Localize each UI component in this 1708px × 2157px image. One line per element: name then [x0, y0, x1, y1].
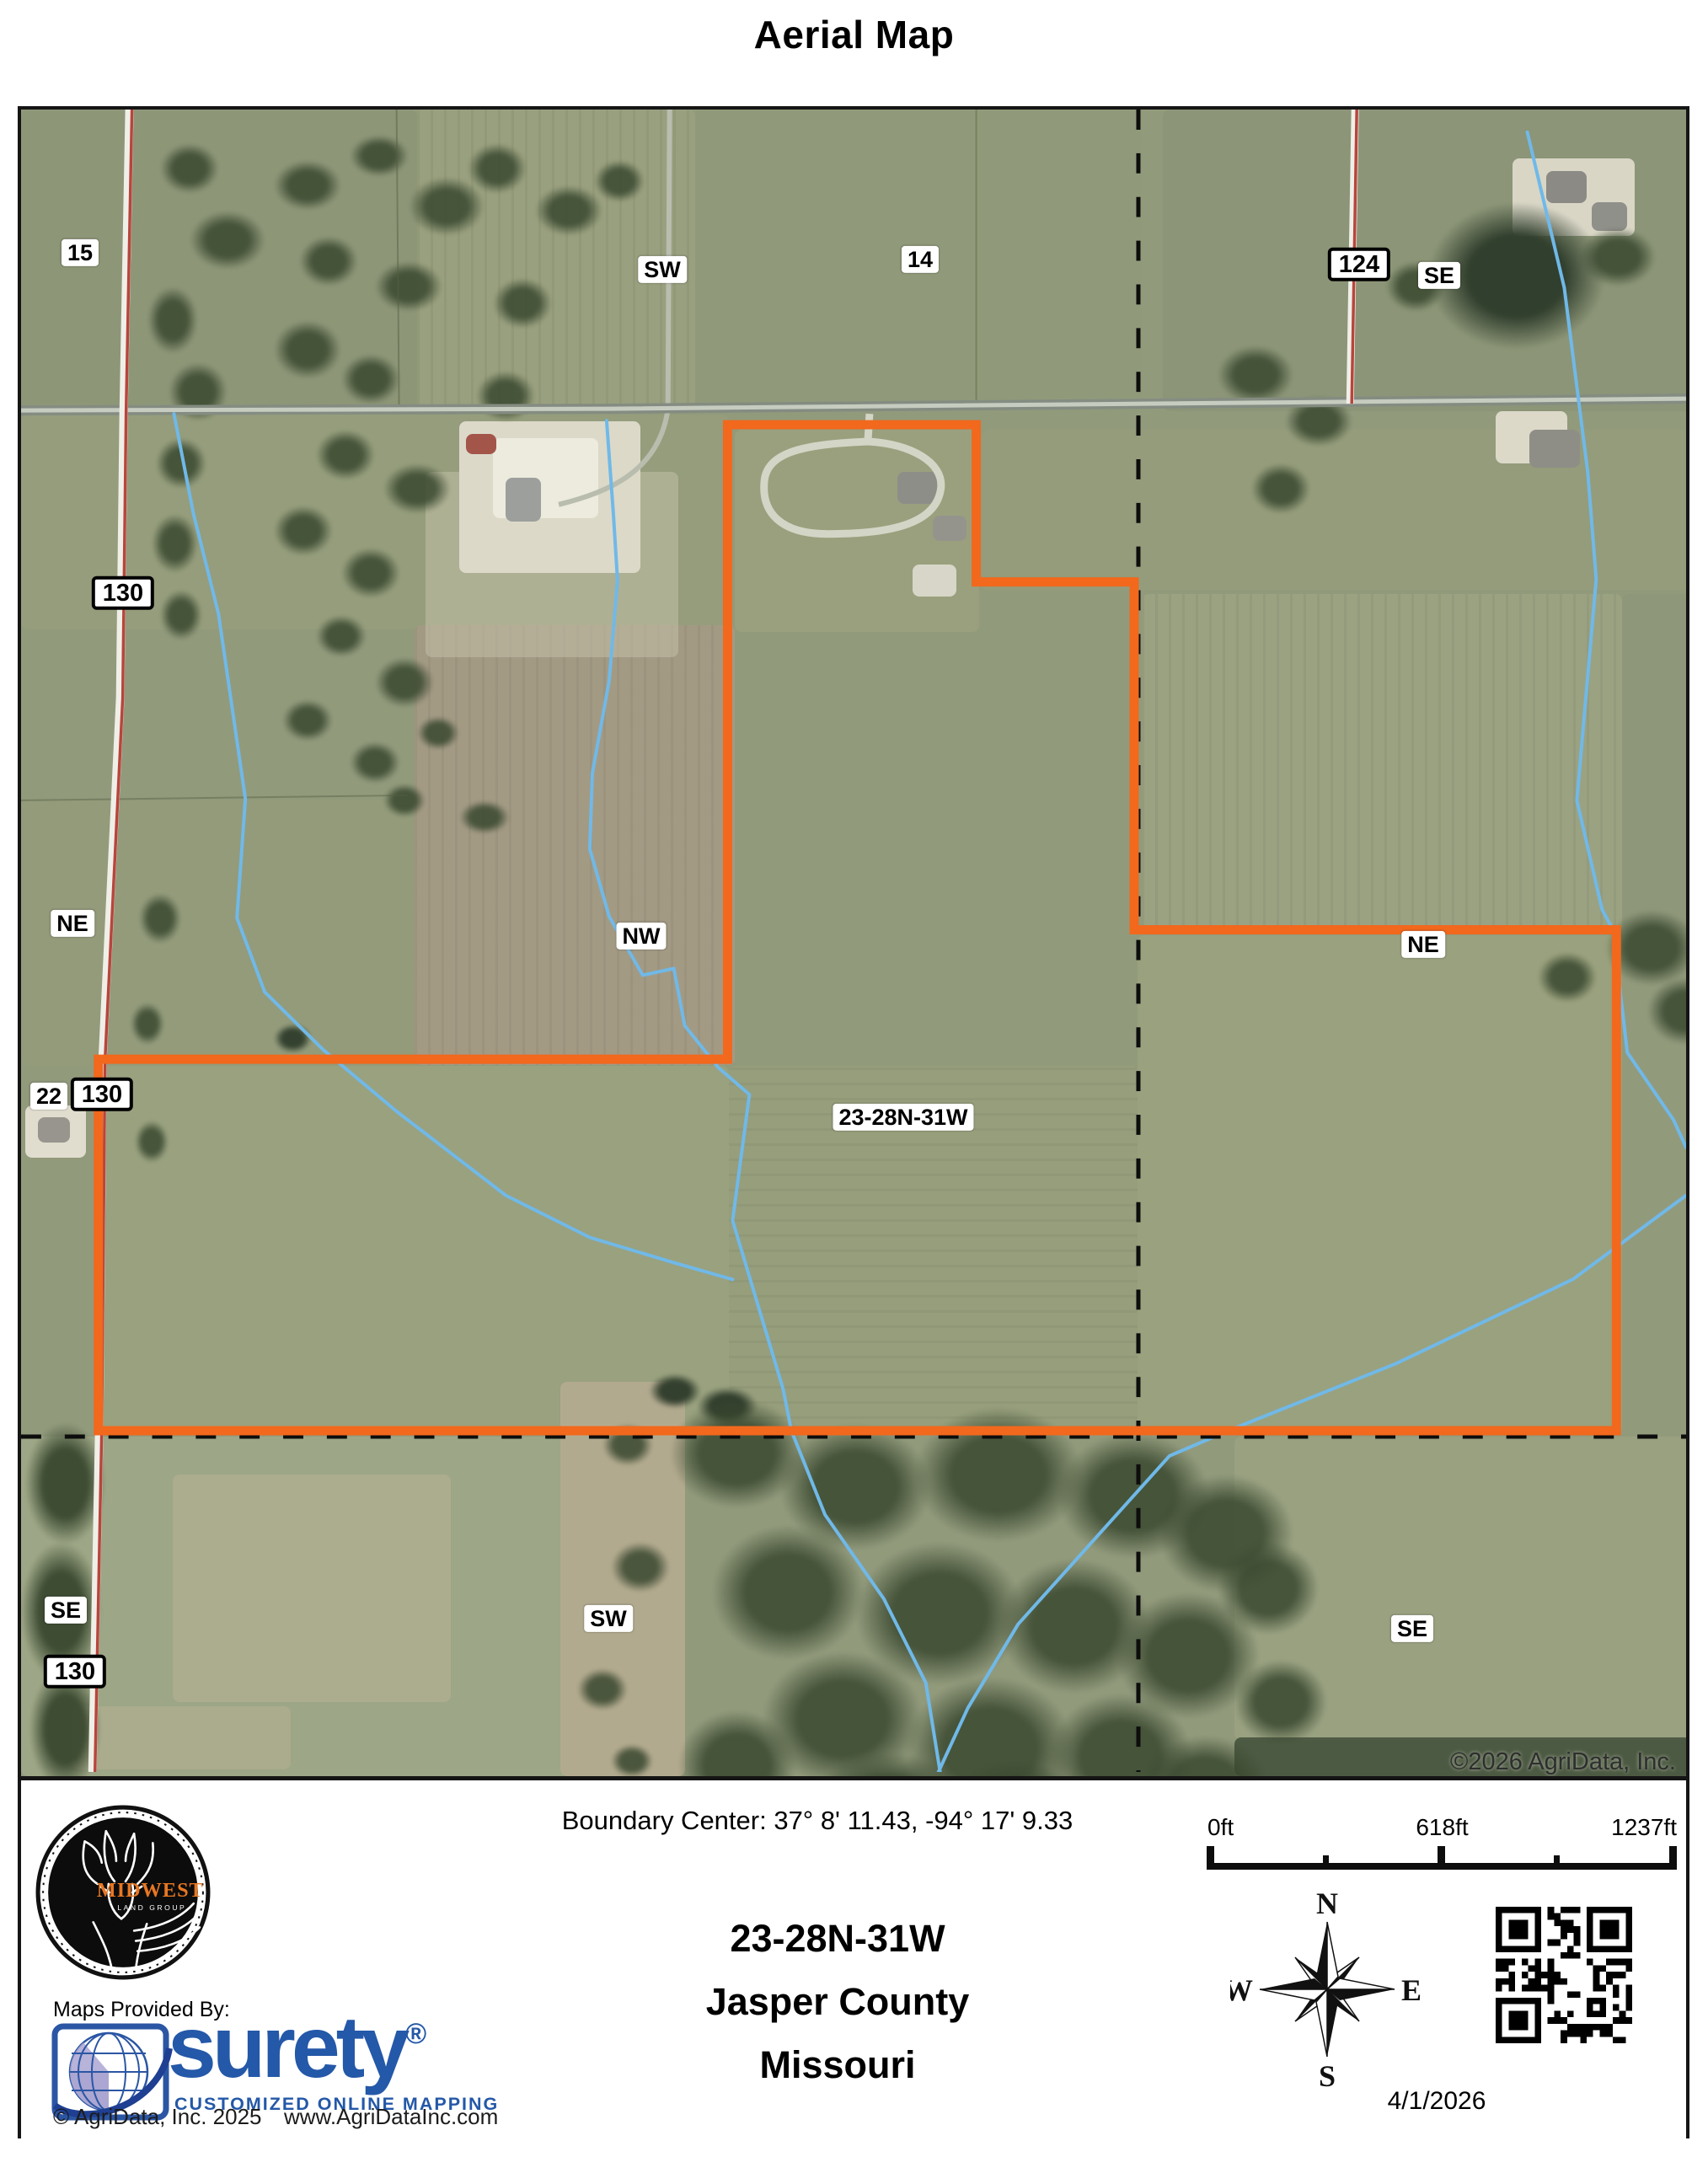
compass-w: W [1230, 1973, 1253, 2007]
farm-driveway [764, 414, 941, 534]
creek-lines [174, 132, 1686, 1772]
section-label: 22 [30, 1083, 67, 1110]
section-label: SW [584, 1605, 633, 1632]
scale-labels: 0ft 618ft 1237ft [1207, 1814, 1677, 1843]
route-shield-label: 130 [92, 576, 154, 610]
section-label: NE [1401, 931, 1445, 958]
boundary-center-text: Boundary Center: 37° 8' 11.43, -94° 17' … [375, 1806, 1260, 1836]
svg-text:LAND GROUP: LAND GROUP [117, 1903, 186, 1912]
map-copyright: ©2026 AgriData, Inc. [1450, 1748, 1676, 1776]
section-label: SE [1391, 1615, 1433, 1642]
section-label: 15 [62, 239, 99, 266]
compass-e: E [1401, 1973, 1422, 2007]
page-title: Aerial Map [0, 12, 1708, 57]
compass-n: N [1316, 1887, 1338, 1920]
midwest-logo-text: MIDWEST [97, 1879, 204, 1902]
route-shield-label: 130 [71, 1078, 133, 1111]
location-state: Missouri [564, 2033, 1111, 2096]
gravel-trail [559, 110, 670, 505]
location-trs: 23-28N-31W [564, 1907, 1111, 1970]
aerial-map-page: Aerial Map [0, 0, 1708, 2157]
property-boundary [99, 425, 1617, 1431]
section-label: SW [638, 256, 687, 283]
route-shield-label: 130 [44, 1655, 106, 1689]
compass-s: S [1319, 2059, 1336, 2093]
map-frame: 15SW14124SE130NE22130NWNE23-28N-31WSE130… [18, 106, 1689, 2138]
compass-star [1260, 1922, 1395, 2057]
surety-logo-text: surety® [168, 1998, 426, 2098]
section-label: 23-28N-31W [833, 1104, 973, 1131]
scale-label-max: 1237ft [1611, 1814, 1677, 1841]
section-label: SE [45, 1597, 87, 1624]
location-county: Jasper County [564, 1970, 1111, 2033]
location-block: 23-28N-31W Jasper County Missouri [564, 1907, 1111, 2096]
agridata-copyright: © AgriData, Inc. 2025 [53, 2104, 262, 2130]
section-label: 14 [902, 246, 939, 273]
agridata-url: www.AgriDataInc.com [284, 2104, 498, 2130]
registered-mark: ® [405, 2018, 426, 2050]
section-label: NW [617, 923, 667, 950]
midwest-land-group-logo: MIDWEST LAND GROUP [34, 1803, 212, 1982]
section-label: SE [1418, 262, 1460, 289]
aerial-map: 15SW14124SE130NE22130NWNE23-28N-31WSE130… [21, 110, 1686, 1780]
map-date: 4/1/2026 [1344, 2087, 1529, 2116]
footer: Boundary Center: 37° 8' 11.43, -94° 17' … [21, 1780, 1686, 2138]
scale-bar [1205, 1841, 1680, 1875]
qr-code [1496, 1907, 1632, 2043]
compass-rose: N S E W [1230, 1887, 1424, 2093]
route-shield-label: 124 [1328, 248, 1390, 281]
scale-label-mid: 618ft [1207, 1814, 1677, 1841]
section-label: NE [51, 910, 94, 937]
